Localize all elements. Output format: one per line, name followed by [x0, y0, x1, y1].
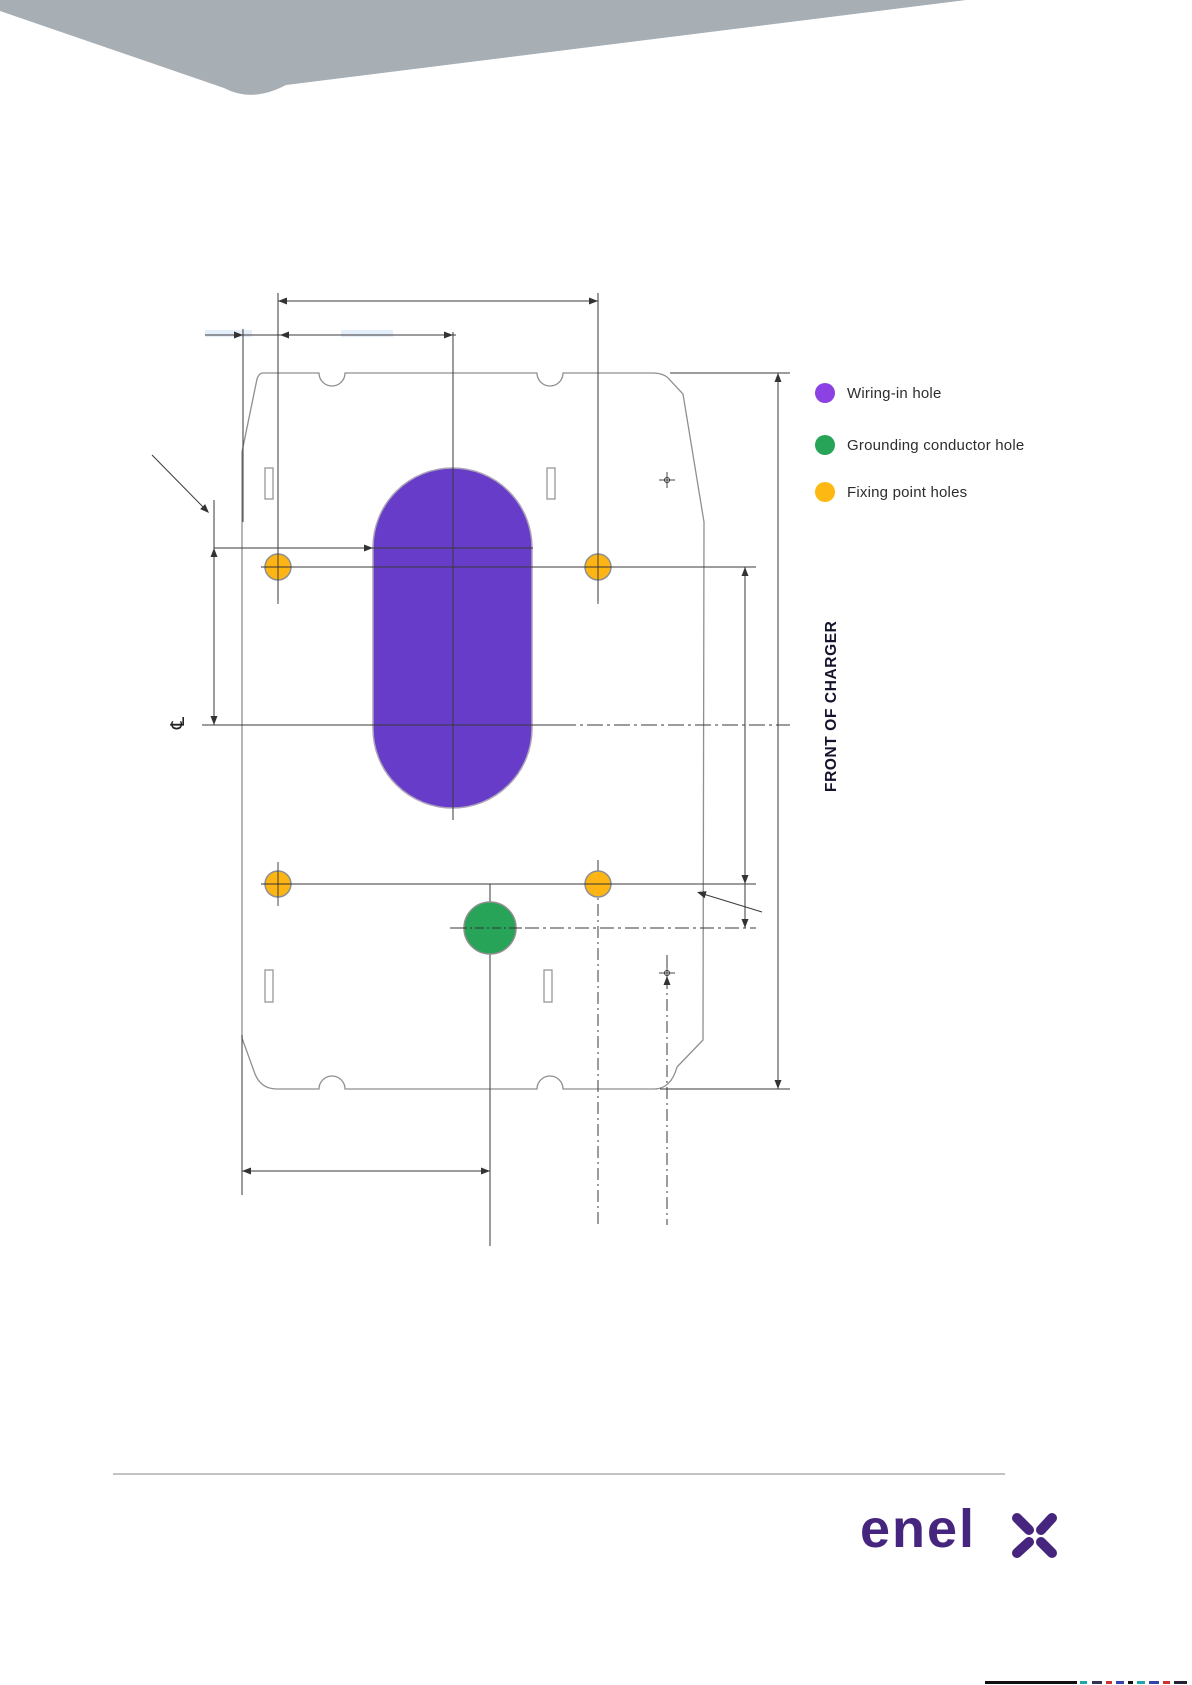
enel-x-logo: enel	[860, 1500, 1080, 1570]
legend-item-grounding: Grounding conductor hole	[815, 435, 1024, 455]
footer-divider	[113, 1473, 1005, 1475]
mounting-template-drawing	[0, 0, 1192, 1685]
legend-item-label: Wiring-in hole	[847, 385, 942, 402]
manual-page: Wiring-in hole Grounding conductor hole …	[0, 0, 1192, 1685]
wiring-hole-dot-icon	[815, 383, 835, 403]
centerline-symbol: ℄	[167, 717, 189, 729]
grounding-hole-dot-icon	[815, 435, 835, 455]
legend-item-fixing: Fixing point holes	[815, 482, 967, 502]
legend-item-label: Fixing point holes	[847, 484, 967, 501]
header-band	[0, 0, 966, 95]
front-of-charger-label: FRONT OF CHARGER	[823, 621, 841, 792]
legend-item-wiring: Wiring-in hole	[815, 383, 942, 403]
faint-artifacts	[205, 330, 393, 337]
page-edge-artifacts	[985, 1681, 1187, 1684]
enel-logo-text: enel	[860, 1500, 976, 1558]
legend-item-label: Grounding conductor hole	[847, 437, 1024, 454]
fixing-holes-dot-icon	[815, 482, 835, 502]
